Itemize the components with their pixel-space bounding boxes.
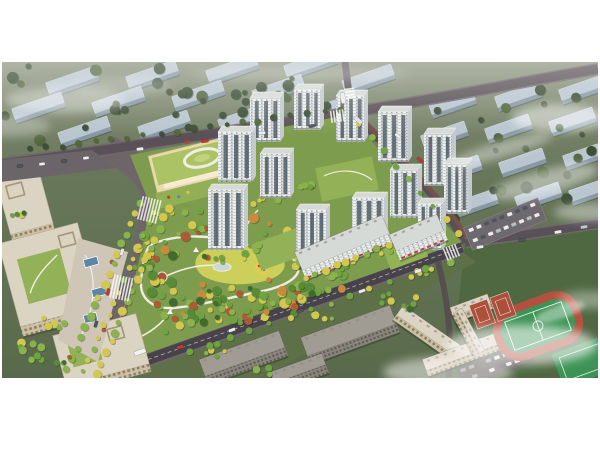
atmospheric-haze (2, 62, 598, 135)
residential-tower (390, 164, 422, 218)
residential-tower (208, 184, 248, 250)
screenshot-canvas (0, 0, 600, 450)
aerial-rendering (0, 0, 600, 450)
residential-tower (260, 148, 294, 198)
